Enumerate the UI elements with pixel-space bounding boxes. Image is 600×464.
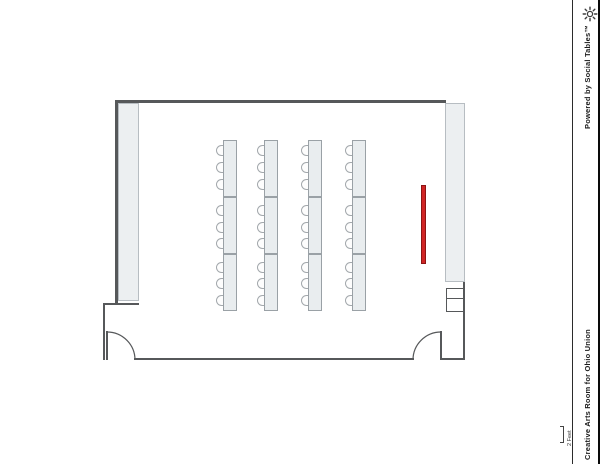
door-swing-arcs: [0, 0, 600, 464]
scale-bar-cap-bottom: [560, 442, 564, 443]
chair[interactable]: [216, 262, 223, 273]
chair[interactable]: [301, 222, 308, 233]
banquet-table[interactable]: [352, 254, 366, 311]
scale-bar-cap-top: [560, 426, 564, 427]
chair[interactable]: [301, 179, 308, 190]
chair[interactable]: [345, 145, 352, 156]
scale-bar-line: [563, 426, 564, 443]
door-swing-arc-right: [413, 332, 441, 360]
chair[interactable]: [301, 295, 308, 306]
floorplan-canvas: Powered by Social Tables™ Creative Arts …: [0, 0, 600, 464]
projection-screen[interactable]: [421, 185, 426, 264]
chair[interactable]: [257, 222, 264, 233]
banquet-table[interactable]: [223, 140, 237, 197]
chair[interactable]: [216, 278, 223, 289]
powered-by-label: Powered by Social Tables™: [581, 28, 594, 129]
chair[interactable]: [257, 162, 264, 173]
chair[interactable]: [257, 262, 264, 273]
sun-icon: [582, 6, 598, 22]
chair[interactable]: [216, 145, 223, 156]
chair[interactable]: [345, 262, 352, 273]
banquet-table[interactable]: [352, 197, 366, 254]
chair[interactable]: [216, 295, 223, 306]
banquet-table[interactable]: [308, 140, 322, 197]
banquet-table[interactable]: [308, 197, 322, 254]
chair[interactable]: [301, 238, 308, 249]
chair[interactable]: [216, 162, 223, 173]
margin-separator-line: [572, 0, 573, 464]
banquet-table[interactable]: [264, 140, 278, 197]
chair[interactable]: [216, 238, 223, 249]
chair[interactable]: [345, 278, 352, 289]
chair[interactable]: [216, 179, 223, 190]
scale-label: 2 Feet: [566, 424, 575, 446]
chair[interactable]: [301, 162, 308, 173]
chair[interactable]: [257, 179, 264, 190]
chair[interactable]: [257, 145, 264, 156]
banquet-table[interactable]: [223, 197, 237, 254]
chair[interactable]: [345, 179, 352, 190]
banquet-table[interactable]: [308, 254, 322, 311]
chair[interactable]: [345, 295, 352, 306]
chair[interactable]: [216, 222, 223, 233]
chair[interactable]: [301, 278, 308, 289]
chair[interactable]: [257, 295, 264, 306]
chair[interactable]: [345, 162, 352, 173]
banquet-table[interactable]: [223, 254, 237, 311]
chair[interactable]: [345, 222, 352, 233]
chair[interactable]: [257, 278, 264, 289]
banquet-table[interactable]: [264, 197, 278, 254]
chair[interactable]: [216, 205, 223, 216]
room-title-label: Creative Arts Room for Ohio Union: [581, 330, 594, 460]
chair[interactable]: [257, 205, 264, 216]
door-swing-arc-left: [107, 332, 135, 360]
chair[interactable]: [257, 238, 264, 249]
chair[interactable]: [345, 205, 352, 216]
chair[interactable]: [301, 262, 308, 273]
chair[interactable]: [301, 145, 308, 156]
chair[interactable]: [345, 238, 352, 249]
chair[interactable]: [301, 205, 308, 216]
banquet-table[interactable]: [352, 140, 366, 197]
banquet-table[interactable]: [264, 254, 278, 311]
